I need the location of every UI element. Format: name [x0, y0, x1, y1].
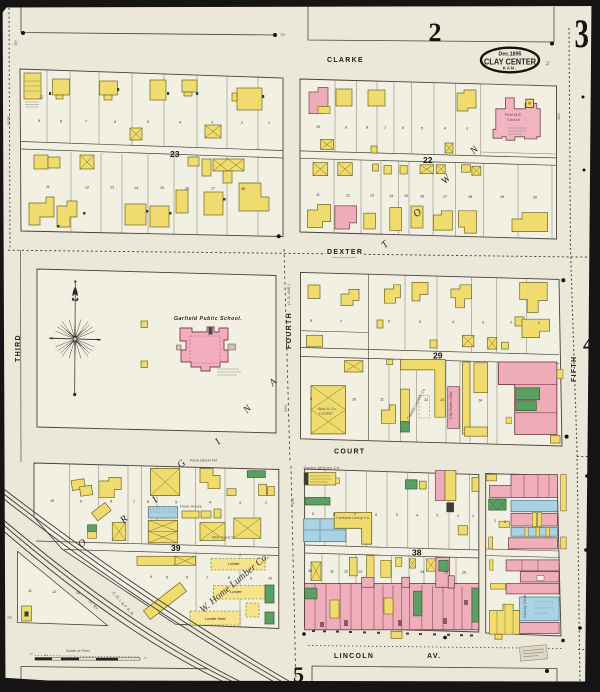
svg-text:150: 150 [556, 113, 561, 120]
svg-text:8: 8 [60, 119, 62, 123]
svg-text:10: 10 [268, 577, 272, 581]
svg-text:8: 8 [310, 319, 312, 323]
svg-text:2: 2 [240, 121, 243, 125]
svg-text:9: 9 [250, 576, 252, 580]
svg-text:1: 1 [268, 121, 270, 125]
svg-text:70': 70' [7, 615, 12, 620]
svg-text:8: 8 [110, 500, 112, 504]
svg-text:5625: 5625 [6, 115, 11, 125]
svg-text:9: 9 [310, 397, 312, 401]
svg-text:13: 13 [440, 398, 444, 402]
svg-text:2: 2 [503, 520, 506, 524]
svg-text:120': 120' [290, 497, 295, 505]
svg-text:5: 5 [419, 320, 421, 324]
svg-text:12: 12 [344, 570, 348, 574]
svg-text:23: 23 [170, 149, 180, 159]
svg-text:39: 39 [171, 543, 181, 553]
svg-text:KAN.: KAN. [503, 65, 517, 70]
svg-text:AV.: AV. [427, 653, 441, 660]
svg-text:(3. D. AVE.): (3. D. AVE.) [286, 283, 291, 305]
svg-text:8: 8 [228, 576, 230, 580]
svg-text:15: 15 [404, 194, 408, 198]
svg-text:3: 3 [239, 501, 241, 505]
svg-text:Lumber Shed: Lumber Shed [205, 617, 225, 621]
svg-text:2: 2 [509, 321, 512, 325]
svg-text:5: 5 [421, 126, 423, 130]
svg-text:5: 5 [166, 575, 168, 579]
svg-text:9: 9 [80, 499, 82, 503]
svg-text:COURT: COURT [334, 449, 365, 456]
svg-text:13: 13 [110, 186, 114, 190]
svg-text:LINCOLN: LINCOLN [334, 653, 374, 660]
svg-text:11: 11 [380, 398, 384, 402]
svg-text:Hose House: Hose House [180, 504, 203, 509]
svg-text:11: 11 [316, 193, 320, 197]
svg-text:15: 15 [444, 570, 448, 574]
svg-text:9: 9 [38, 119, 40, 123]
svg-text:3: 3 [211, 121, 213, 125]
svg-text:12: 12 [52, 590, 56, 594]
svg-text:4: 4 [416, 513, 418, 517]
svg-text:4: 4 [209, 501, 211, 505]
svg-text:14: 14 [478, 398, 482, 402]
svg-text:10: 10 [308, 569, 312, 573]
svg-text:1: 1 [538, 321, 540, 325]
svg-text:1: 1 [494, 519, 496, 523]
svg-text:22: 22 [423, 155, 433, 165]
svg-text:9: 9 [312, 512, 314, 516]
svg-text:16: 16 [462, 571, 466, 575]
svg-text:City Roller Mills: City Roller Mills [448, 391, 453, 419]
svg-text:38: 38 [412, 548, 422, 558]
svg-text:3: 3 [466, 127, 468, 131]
svg-text:14: 14 [389, 194, 393, 198]
svg-text:11: 11 [46, 185, 50, 189]
svg-text:CLARKE: CLARKE [327, 57, 364, 64]
svg-text:6: 6 [402, 126, 404, 130]
svg-text:County Clerk: County Clerk [522, 595, 527, 618]
svg-text:18: 18 [241, 187, 245, 191]
svg-text:13: 13 [370, 194, 374, 198]
svg-text:4: 4 [179, 120, 181, 124]
svg-text:9: 9 [345, 125, 347, 129]
svg-text:16: 16 [185, 186, 189, 190]
svg-text:8: 8 [333, 512, 335, 516]
svg-text:2: 2 [264, 501, 267, 505]
svg-text:6: 6 [114, 120, 116, 124]
svg-text:18: 18 [468, 195, 472, 199]
svg-text:5: 5 [175, 500, 177, 504]
svg-text:10: 10 [352, 397, 356, 401]
svg-text:16: 16 [420, 194, 424, 198]
svg-text:Lumber: Lumber [228, 562, 240, 566]
svg-text:10: 10 [50, 499, 54, 503]
svg-text:6: 6 [388, 320, 390, 324]
svg-text:12: 12 [85, 185, 89, 189]
svg-text:8: 8 [366, 126, 368, 130]
svg-text:11: 11 [28, 589, 32, 593]
svg-text:12: 12 [424, 398, 428, 402]
svg-text:DEXTER: DEXTER [327, 249, 363, 256]
svg-text:14: 14 [420, 570, 424, 574]
svg-text:Church: Church [507, 117, 520, 122]
svg-text:6: 6 [375, 513, 377, 517]
svg-text:70': 70' [280, 32, 285, 37]
svg-text:4: 4 [452, 320, 454, 324]
svg-text:120': 120' [283, 404, 288, 412]
svg-text:5: 5 [147, 120, 149, 124]
svg-text:5: 5 [396, 513, 398, 517]
svg-text:6: 6 [186, 576, 188, 580]
svg-text:29: 29 [433, 351, 443, 361]
svg-text:Scale of Feet.: Scale of Feet. [66, 648, 91, 653]
svg-text:15: 15 [160, 186, 164, 190]
svg-text:4: 4 [150, 575, 152, 579]
svg-text:19: 19 [500, 195, 504, 199]
svg-text:2: 2 [429, 18, 442, 47]
svg-text:4: 4 [444, 127, 446, 131]
svg-text:14: 14 [134, 186, 138, 190]
svg-text:3: 3 [482, 320, 484, 324]
svg-text:20: 20 [532, 195, 537, 199]
svg-text:Lumber: Lumber [319, 411, 333, 416]
svg-text:13: 13 [358, 570, 362, 574]
svg-text:2: 2 [456, 514, 459, 518]
svg-text:3: 3 [436, 514, 438, 518]
svg-text:Rock Island Rd: Rock Island Rd [190, 458, 217, 463]
svg-text:11: 11 [330, 569, 334, 573]
svg-text:3: 3 [575, 11, 589, 56]
svg-text:Garfield Public School.: Garfield Public School. [174, 316, 242, 322]
svg-text:10: 10 [316, 125, 320, 129]
svg-text:1: 1 [472, 514, 474, 518]
svg-text:6: 6 [147, 500, 149, 504]
svg-text:12: 12 [346, 193, 350, 197]
